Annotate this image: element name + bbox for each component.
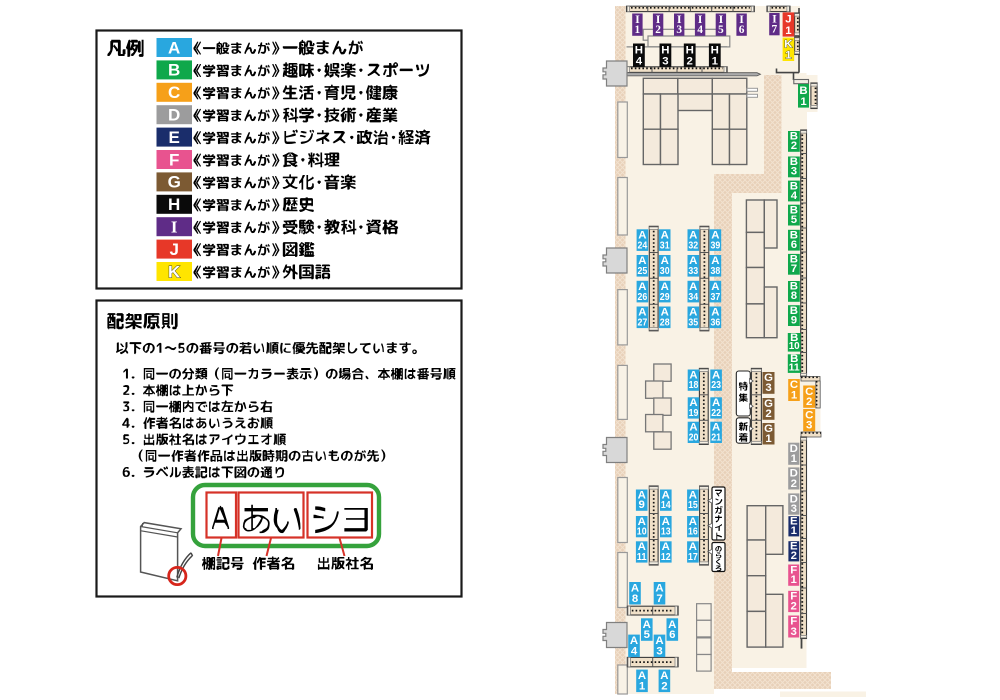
svg-text:J: J — [785, 14, 791, 26]
svg-text:28: 28 — [660, 318, 670, 329]
svg-text:25: 25 — [638, 266, 648, 277]
svg-text:A: A — [168, 38, 180, 57]
svg-text:5: 5 — [718, 24, 724, 36]
svg-text:12: 12 — [661, 552, 671, 563]
svg-text:1: 1 — [712, 55, 719, 67]
svg-text:32: 32 — [688, 240, 698, 251]
svg-text:33: 33 — [688, 266, 698, 277]
svg-text:35: 35 — [688, 318, 698, 329]
svg-text:2: 2 — [687, 55, 693, 67]
svg-text:3: 3 — [791, 626, 797, 638]
svg-text:7: 7 — [656, 593, 662, 605]
svg-text:31: 31 — [660, 240, 670, 251]
svg-text:21: 21 — [711, 432, 721, 443]
svg-text:8: 8 — [791, 290, 797, 302]
svg-text:7: 7 — [772, 24, 778, 36]
svg-text:I: I — [171, 218, 178, 237]
svg-text:2: 2 — [655, 24, 661, 36]
svg-text:34: 34 — [688, 292, 698, 303]
svg-text:14: 14 — [661, 500, 671, 511]
svg-text:3: 3 — [806, 420, 812, 432]
svg-text:4: 4 — [636, 55, 643, 67]
svg-text:D: D — [168, 106, 180, 125]
svg-text:19: 19 — [689, 408, 699, 419]
svg-text:1: 1 — [765, 433, 772, 445]
svg-text:3: 3 — [656, 646, 662, 658]
svg-text:8: 8 — [632, 593, 638, 605]
svg-text:5: 5 — [791, 214, 798, 226]
svg-text:9: 9 — [791, 314, 797, 326]
svg-text:1: 1 — [785, 49, 792, 61]
svg-text:3: 3 — [765, 382, 771, 394]
svg-text:15: 15 — [688, 500, 698, 511]
svg-text:1: 1 — [791, 389, 798, 401]
svg-text:27: 27 — [638, 318, 648, 329]
svg-text:1: 1 — [791, 453, 798, 465]
svg-text:22: 22 — [711, 408, 721, 419]
svg-text:38: 38 — [711, 266, 721, 277]
svg-text:18: 18 — [689, 380, 699, 391]
svg-text:4: 4 — [791, 190, 798, 202]
svg-text:J: J — [169, 240, 178, 259]
svg-text:3: 3 — [791, 503, 797, 515]
svg-text:2: 2 — [791, 140, 797, 152]
svg-text:1: 1 — [791, 525, 798, 537]
svg-text:11: 11 — [637, 552, 647, 563]
svg-text:5: 5 — [644, 629, 651, 641]
svg-text:C: C — [168, 83, 180, 102]
svg-text:2: 2 — [791, 601, 797, 613]
svg-text:2: 2 — [661, 681, 667, 693]
svg-text:2: 2 — [806, 396, 812, 408]
svg-text:4: 4 — [631, 646, 638, 658]
svg-text:2: 2 — [765, 408, 771, 420]
svg-text:11: 11 — [789, 362, 800, 373]
svg-text:20: 20 — [689, 432, 699, 443]
svg-text:1: 1 — [791, 574, 798, 586]
svg-text:16: 16 — [688, 527, 698, 538]
svg-text:2: 2 — [791, 550, 797, 562]
svg-text:7: 7 — [791, 263, 797, 275]
svg-text:B: B — [168, 61, 180, 80]
svg-text:E: E — [169, 128, 180, 147]
svg-text:9: 9 — [639, 499, 645, 511]
svg-text:10: 10 — [637, 527, 647, 538]
svg-text:K: K — [168, 262, 181, 281]
svg-text:G: G — [168, 173, 181, 192]
svg-text:1: 1 — [800, 96, 807, 108]
svg-text:36: 36 — [711, 318, 721, 329]
svg-text:1: 1 — [639, 681, 646, 693]
svg-text:1: 1 — [785, 25, 792, 37]
svg-text:24: 24 — [638, 240, 648, 251]
svg-text:6: 6 — [669, 629, 675, 641]
svg-text:30: 30 — [660, 266, 670, 277]
svg-text:26: 26 — [638, 292, 648, 303]
svg-text:6: 6 — [791, 239, 797, 251]
svg-text:4: 4 — [697, 24, 703, 36]
svg-text:37: 37 — [711, 292, 721, 303]
svg-text:29: 29 — [660, 292, 670, 303]
svg-text:6: 6 — [739, 24, 745, 36]
svg-text:23: 23 — [711, 380, 721, 391]
svg-text:F: F — [169, 150, 179, 169]
svg-text:3: 3 — [662, 55, 668, 67]
svg-text:2: 2 — [791, 478, 797, 490]
svg-text:1: 1 — [635, 24, 641, 36]
svg-text:39: 39 — [711, 240, 721, 251]
svg-text:3: 3 — [791, 166, 797, 178]
svg-text:10: 10 — [789, 341, 800, 352]
svg-text:17: 17 — [688, 552, 698, 563]
svg-text:H: H — [168, 195, 180, 214]
svg-text:13: 13 — [661, 527, 671, 538]
svg-text:3: 3 — [676, 24, 682, 36]
